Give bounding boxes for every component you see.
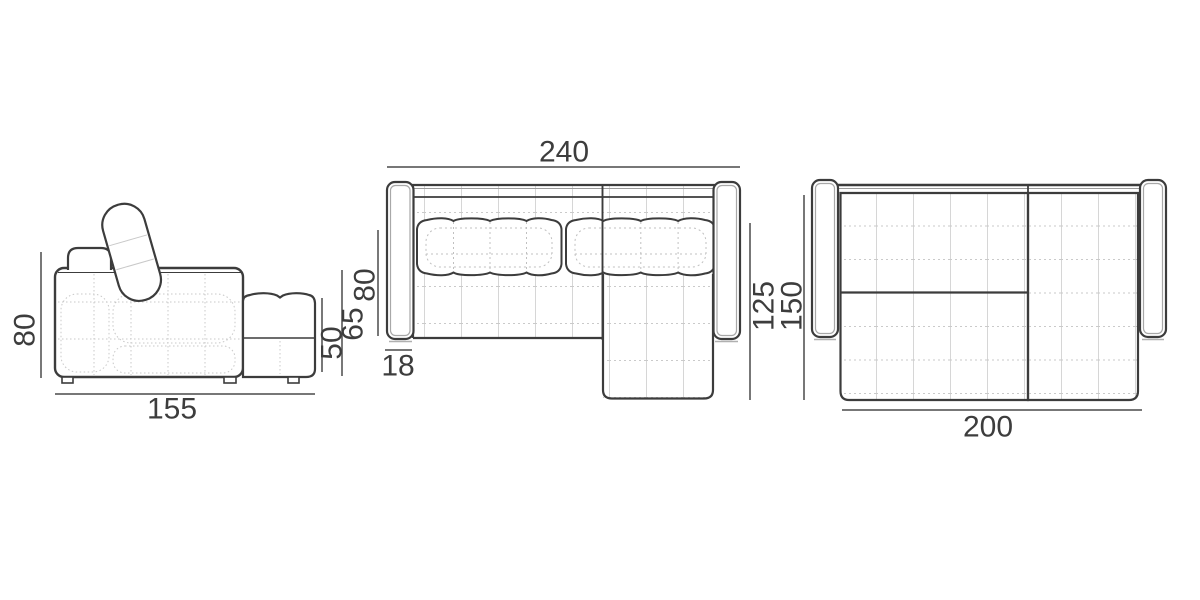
dim-top-width-label: 240: [539, 136, 589, 169]
side-foot: [288, 377, 299, 383]
diagram-canvas: 80 155 50 65 80 18 240 125 150 200: [0, 0, 1200, 600]
bed-armrest-right: [1140, 180, 1166, 340]
top-view: [387, 182, 740, 399]
bed-armrest-left: [812, 180, 838, 340]
dim-bed-depth-label: 150: [776, 281, 809, 331]
dim-seat-height-label: 65: [337, 307, 370, 340]
side-foot: [62, 377, 73, 383]
bed-view: [812, 180, 1166, 400]
top-chaise-grid: [603, 274, 713, 398]
side-foot: [224, 377, 236, 383]
dim-bed-width-label: 200: [963, 411, 1013, 444]
side-view: [55, 199, 315, 383]
dim-side-height-label: 80: [9, 313, 42, 346]
side-chaise: [243, 293, 315, 377]
dim-seat-depth-label: 80: [349, 268, 382, 301]
dim-side-depth-label: 155: [147, 393, 197, 426]
side-armrest: [68, 248, 111, 270]
sofa-dimension-diagram: 80 155 50 65 80 18 240 125 150 200: [0, 0, 1200, 600]
dim-armrest-width-label: 18: [381, 350, 414, 383]
top-armrest-right: [714, 182, 741, 342]
top-armrest-left: [387, 182, 414, 342]
bed-section-right: [1028, 193, 1138, 400]
bed-section-left: [841, 193, 1029, 400]
